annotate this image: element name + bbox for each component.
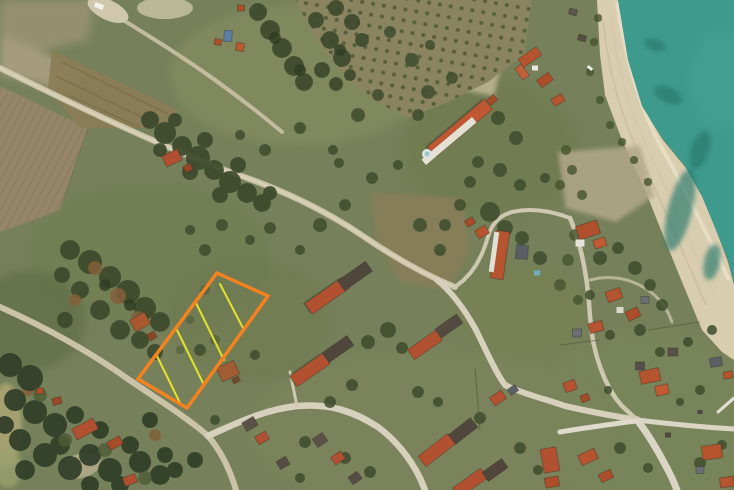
satellite-map: [0, 0, 734, 490]
